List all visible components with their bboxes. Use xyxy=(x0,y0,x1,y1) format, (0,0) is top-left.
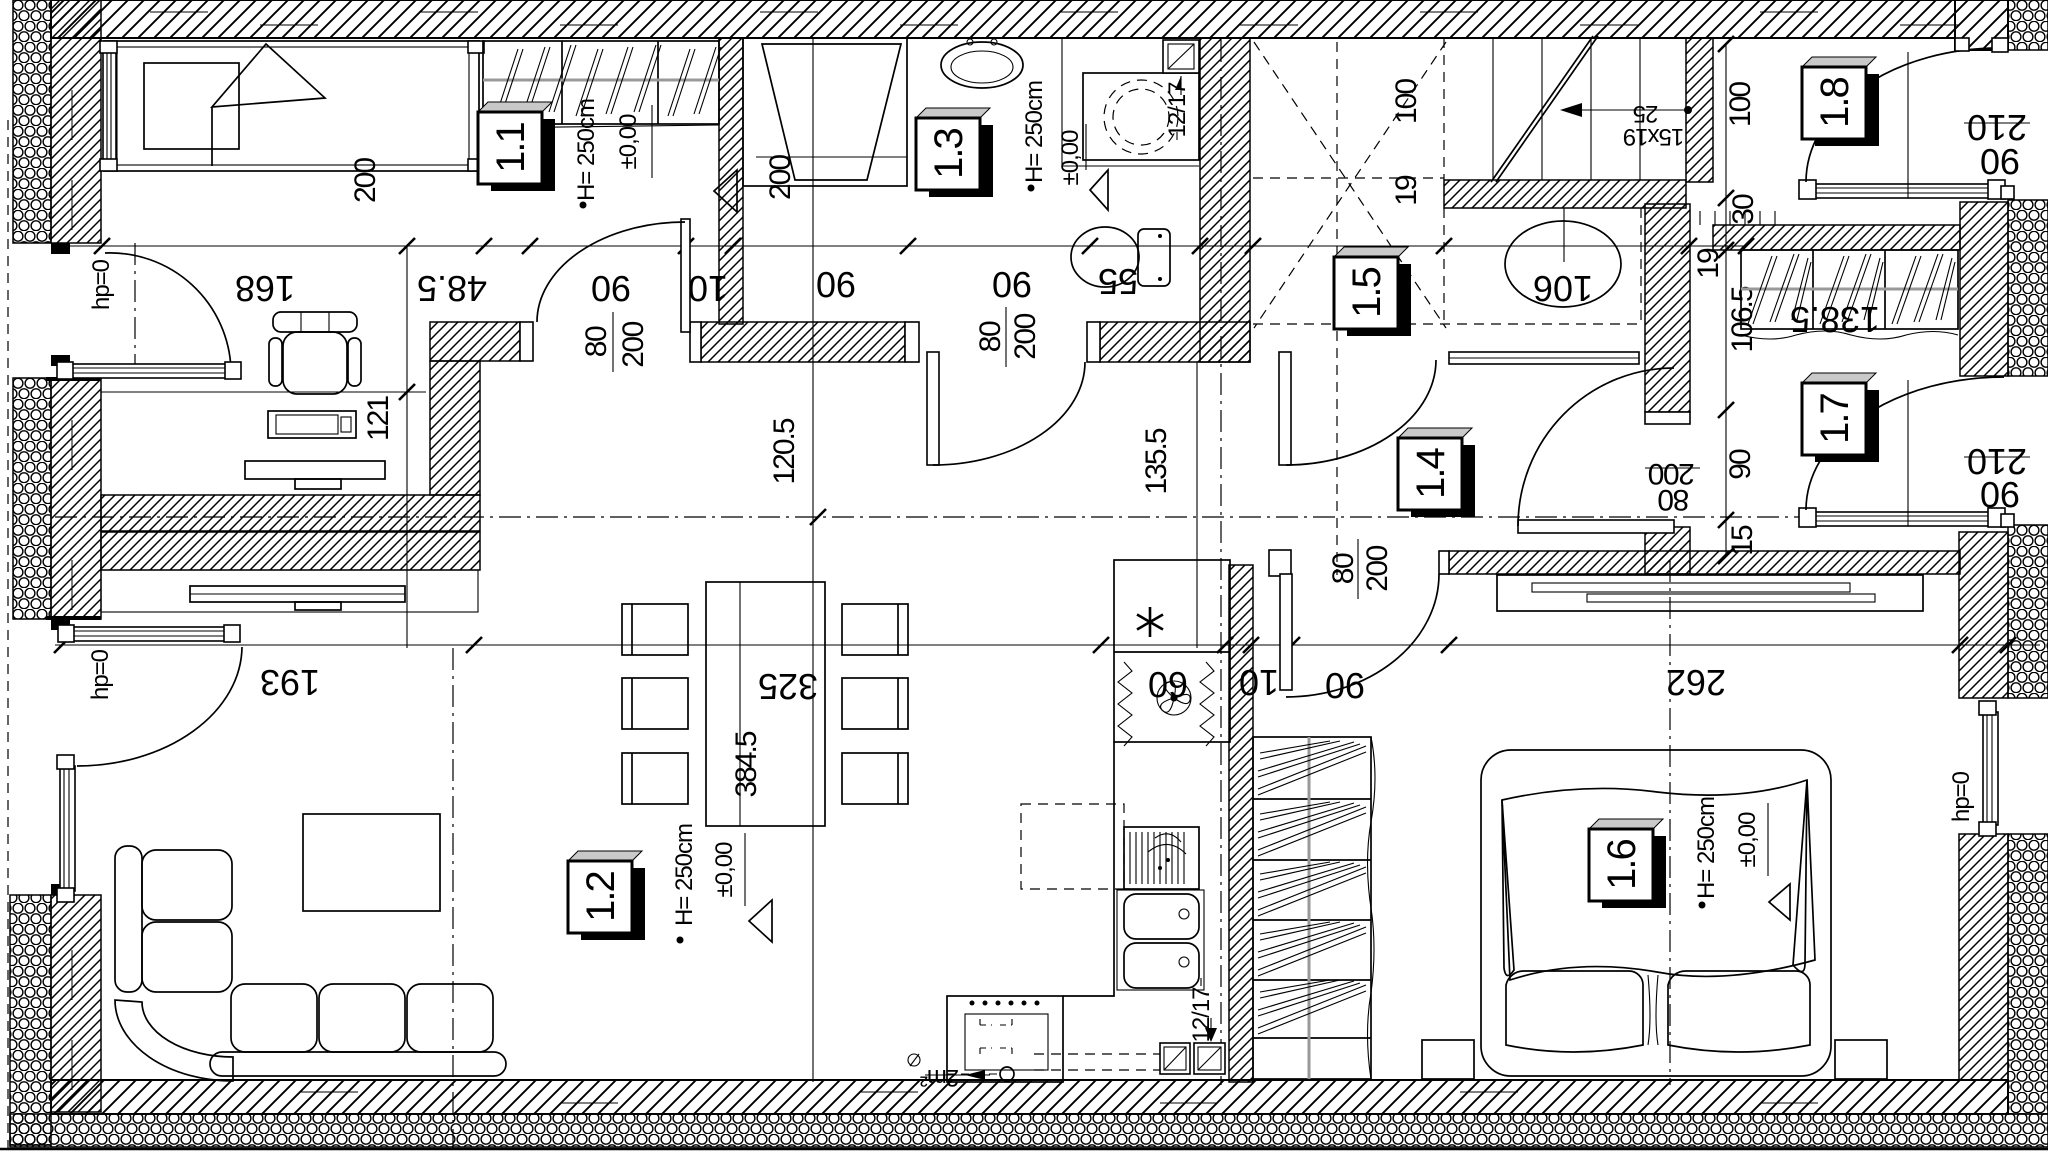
svg-text:121: 121 xyxy=(362,396,395,441)
svg-text:120.5: 120.5 xyxy=(768,418,801,484)
svg-text:48.5: 48.5 xyxy=(417,268,487,309)
svg-text:138.5: 138.5 xyxy=(1790,299,1880,340)
svg-text:±0,00: ±0,00 xyxy=(1734,812,1761,868)
svg-text:262: 262 xyxy=(1666,662,1726,703)
svg-text:200: 200 xyxy=(1009,313,1042,359)
svg-text:1.8: 1.8 xyxy=(1813,77,1857,127)
svg-text:±0,00: ±0,00 xyxy=(711,842,738,898)
svg-text:2m²: 2m² xyxy=(920,1064,959,1091)
svg-text:135.5: 135.5 xyxy=(1140,428,1173,494)
svg-text:80: 80 xyxy=(1658,483,1689,516)
svg-text:1.2: 1.2 xyxy=(579,871,623,921)
svg-text:H= 250cm: H= 250cm xyxy=(573,99,600,201)
svg-text:H= 250cm: H= 250cm xyxy=(671,824,698,926)
svg-text:168: 168 xyxy=(235,268,295,309)
svg-text:80: 80 xyxy=(974,321,1007,352)
svg-text:H= 250cm: H= 250cm xyxy=(1021,81,1048,183)
svg-text:hp=0: hp=0 xyxy=(87,649,114,700)
svg-text:90: 90 xyxy=(1325,665,1365,706)
svg-text:1.4: 1.4 xyxy=(1409,447,1453,498)
svg-text:325: 325 xyxy=(758,666,818,707)
svg-text:12/17: 12/17 xyxy=(1164,82,1191,138)
svg-text:80: 80 xyxy=(580,326,613,357)
svg-text:106: 106 xyxy=(1533,268,1593,309)
svg-text:25: 25 xyxy=(1633,100,1658,127)
svg-text:hp=0: hp=0 xyxy=(88,259,115,310)
svg-text:90: 90 xyxy=(816,264,856,305)
svg-text:90: 90 xyxy=(591,268,631,309)
svg-text:1.1: 1.1 xyxy=(489,122,533,172)
svg-text:±0,00: ±0,00 xyxy=(1057,130,1084,186)
svg-text:H= 250cm: H= 250cm xyxy=(1693,797,1720,899)
svg-text:1.5: 1.5 xyxy=(1345,267,1389,317)
svg-text:80: 80 xyxy=(1327,553,1360,584)
svg-text:200: 200 xyxy=(1361,545,1394,591)
svg-text:90: 90 xyxy=(992,264,1032,305)
svg-text:100: 100 xyxy=(1724,82,1757,127)
svg-text:100: 100 xyxy=(1390,79,1423,124)
svg-text:200: 200 xyxy=(764,155,797,200)
svg-text:90: 90 xyxy=(1980,474,2020,515)
svg-text:384.5: 384.5 xyxy=(730,731,763,797)
svg-text:90: 90 xyxy=(1724,449,1757,480)
svg-text:90: 90 xyxy=(1980,141,2020,182)
svg-text:55: 55 xyxy=(1098,261,1138,302)
svg-text:1.6: 1.6 xyxy=(1600,839,1644,889)
svg-text:±0,00: ±0,00 xyxy=(615,114,642,170)
svg-text:10: 10 xyxy=(1239,662,1279,703)
svg-text:19: 19 xyxy=(1692,248,1725,279)
svg-text:60: 60 xyxy=(1148,664,1188,705)
svg-text:1.3: 1.3 xyxy=(927,128,971,178)
svg-text:200: 200 xyxy=(617,321,650,367)
svg-text:106.5: 106.5 xyxy=(1726,286,1759,352)
svg-text:193: 193 xyxy=(260,662,320,703)
svg-text:hp=0: hp=0 xyxy=(1948,771,1975,822)
svg-text:1.7: 1.7 xyxy=(1813,393,1857,443)
svg-text:19: 19 xyxy=(1390,175,1423,206)
svg-text:10: 10 xyxy=(688,268,728,309)
svg-text:30: 30 xyxy=(1727,194,1760,225)
